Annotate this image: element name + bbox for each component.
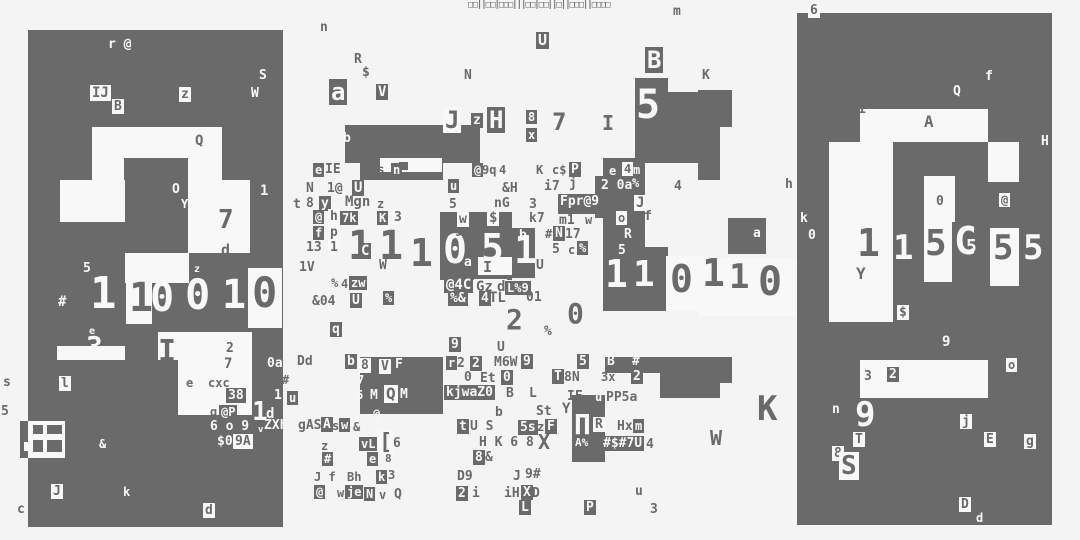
art-glyph: L: [529, 387, 537, 400]
art-glyph: %: [544, 325, 552, 338]
art-glyph: x: [526, 128, 537, 142]
art-block: [698, 90, 732, 127]
art-glyph: 6 o 9: [210, 420, 249, 433]
art-block: [860, 360, 988, 398]
art-glyph: 1@: [327, 182, 343, 195]
art-glyph: c: [17, 503, 25, 516]
art-glyph: nG: [494, 197, 510, 210]
art-glyph: z: [179, 87, 191, 102]
art-glyph: A%: [575, 437, 588, 448]
art-glyph: 38: [226, 388, 246, 403]
art-glyph: &: [353, 421, 360, 433]
art-glyph: vL: [359, 437, 377, 451]
art-glyph: U: [350, 293, 362, 308]
art-glyph: n: [320, 21, 328, 34]
art-glyph: Dd: [297, 355, 313, 368]
art-glyph: d: [221, 243, 230, 258]
art-glyph: 9: [855, 398, 875, 432]
art-glyph: Q: [953, 85, 961, 98]
art-glyph: Y: [181, 198, 188, 210]
art-glyph: w: [339, 418, 350, 432]
art-glyph: T: [853, 432, 865, 447]
art-glyph: 1: [473, 225, 480, 237]
art-glyph: %: [383, 291, 394, 305]
art-glyph: L: [519, 500, 531, 515]
art-glyph: @: [314, 485, 325, 499]
art-glyph: e: [186, 377, 193, 389]
art-glyph: a: [464, 256, 472, 269]
art-glyph: B: [645, 47, 663, 73]
art-glyph: #: [282, 374, 289, 386]
art-block: [660, 372, 720, 398]
art-glyph: kjwaZ0: [444, 385, 495, 400]
art-glyph: j: [569, 177, 577, 190]
ascii-art-canvas: □□||□□|□□□|||□□|□□||□||□□□||□□□□s5cr @SW…: [0, 0, 1080, 540]
art-glyph: 0: [185, 274, 210, 316]
art-glyph: R: [624, 228, 632, 241]
art-glyph: e: [313, 163, 324, 177]
art-glyph: @: [999, 193, 1010, 207]
art-glyph: 0: [808, 229, 816, 242]
art-glyph: u: [635, 485, 643, 498]
window-pane-part: [20, 421, 28, 458]
art-glyph: 13: [306, 241, 322, 254]
art-glyph: 5: [1023, 231, 1043, 265]
art-glyph: 1V: [299, 261, 315, 274]
art-glyph: 5: [449, 198, 457, 211]
art-glyph: Q: [394, 488, 402, 501]
art-glyph: g: [505, 231, 512, 242]
art-glyph: Mgn: [345, 195, 370, 209]
art-glyph: a: [753, 227, 761, 240]
art-glyph: 3: [864, 370, 872, 383]
art-glyph: 6: [808, 3, 820, 18]
art-block: [635, 145, 700, 163]
art-glyph: je: [345, 485, 363, 499]
art-glyph: M: [400, 388, 408, 401]
art-glyph: @: [313, 210, 324, 224]
art-glyph: D9: [457, 470, 473, 483]
art-glyph: h: [785, 178, 793, 191]
art-glyph: 0: [464, 371, 472, 384]
art-glyph: %: [331, 277, 338, 289]
art-glyph: N: [306, 182, 314, 195]
art-glyph: 8: [359, 358, 371, 373]
art-glyph: 4: [646, 438, 654, 451]
art-glyph: A: [924, 114, 934, 130]
art-glyph: D: [532, 487, 540, 500]
art-glyph: W: [251, 87, 259, 100]
art-glyph: N: [464, 69, 472, 82]
art-glyph: J: [513, 470, 521, 483]
art-glyph: 2: [470, 356, 482, 371]
art-glyph: U: [536, 32, 549, 49]
art-glyph: I: [483, 260, 492, 275]
art-glyph: k: [376, 470, 387, 484]
art-glyph: V: [376, 84, 388, 100]
art-glyph: g: [1024, 434, 1036, 449]
art-glyph: b: [495, 406, 503, 419]
art-glyph: 0: [936, 195, 944, 208]
art-glyph: 3: [388, 469, 395, 481]
window-pane-part: [24, 442, 28, 451]
art-glyph: J f: [314, 471, 336, 483]
art-glyph: o: [1006, 358, 1017, 372]
art-glyph: Y: [562, 402, 570, 416]
art-glyph: f: [313, 226, 324, 240]
art-glyph: 1: [729, 260, 749, 294]
art-glyph: 1: [605, 255, 628, 293]
art-glyph: &04: [312, 295, 335, 308]
art-glyph: V: [379, 359, 391, 374]
art-glyph: 8: [526, 110, 537, 124]
art-glyph: l: [59, 376, 71, 391]
art-glyph: #: [632, 355, 640, 368]
art-glyph: B: [607, 355, 615, 368]
art-glyph: S: [259, 69, 267, 82]
art-glyph: c: [568, 244, 575, 256]
art-glyph: 3: [529, 198, 537, 211]
art-glyph: Et: [480, 372, 496, 385]
art-glyph: n: [391, 163, 402, 177]
art-glyph: K: [757, 392, 777, 426]
art-glyph: J: [51, 484, 63, 499]
art-glyph: q: [330, 322, 342, 337]
art-block: [988, 142, 1019, 182]
art-glyph: $0: [217, 435, 233, 448]
art-glyph: H: [487, 107, 505, 133]
art-glyph: c$: [552, 164, 566, 176]
art-glyph: m: [633, 164, 640, 176]
art-glyph: z: [377, 198, 384, 210]
art-glyph: C: [359, 243, 371, 259]
art-glyph: 9: [521, 354, 533, 369]
art-glyph: a: [329, 79, 347, 105]
art-glyph: 9q: [482, 164, 496, 176]
art-glyph: 7: [357, 374, 364, 386]
art-glyph: U S: [470, 420, 493, 433]
art-glyph: Y: [856, 266, 866, 282]
art-glyph: 4: [497, 163, 508, 177]
art-glyph: I: [158, 337, 176, 367]
art-glyph: K: [536, 164, 543, 176]
art-glyph: $: [362, 66, 370, 79]
art-glyph: &: [99, 438, 106, 450]
art-glyph: 17: [565, 228, 581, 241]
art-glyph: R: [354, 53, 362, 66]
art-glyph: d: [203, 503, 215, 518]
art-glyph: gAS: [298, 419, 321, 432]
art-glyph: Hx: [617, 420, 633, 433]
art-glyph: X: [538, 432, 550, 452]
art-glyph: 7: [224, 357, 232, 371]
art-glyph: k7: [529, 212, 545, 225]
window-pane-cell: [33, 440, 43, 452]
art-glyph: n: [832, 403, 840, 416]
art-block: [188, 158, 222, 181]
art-glyph: 5: [577, 354, 589, 369]
art-glyph: 6: [356, 389, 363, 401]
art-glyph: PP5a: [606, 391, 637, 404]
art-glyph: M6W: [494, 356, 517, 369]
art-glyph: d: [976, 512, 983, 524]
art-glyph: m: [633, 419, 644, 433]
art-glyph: o: [616, 211, 627, 225]
art-glyph: 1: [260, 184, 268, 198]
art-glyph: 8: [306, 197, 314, 210]
binary-header-text: □□||□□|□□□|||□□|□□||□||□□□||□□□□: [468, 1, 609, 10]
art-glyph: B: [506, 387, 514, 400]
art-glyph: 1: [90, 272, 117, 316]
art-glyph: J: [443, 107, 461, 133]
art-glyph: Fpr@9: [560, 195, 599, 208]
art-glyph: 1: [328, 240, 340, 255]
art-glyph: &: [485, 451, 493, 464]
art-glyph: 7: [552, 110, 566, 134]
art-glyph: #: [58, 295, 66, 309]
art-glyph: R: [593, 417, 605, 432]
art-glyph: 5s: [518, 420, 538, 435]
art-glyph: @P: [219, 405, 237, 419]
art-glyph: r: [446, 356, 457, 370]
art-glyph: 5: [925, 226, 947, 262]
art-glyph: %: [577, 241, 588, 255]
art-glyph: ZXh: [264, 419, 287, 432]
art-glyph: u: [448, 179, 459, 193]
art-glyph: %&: [448, 291, 468, 306]
art-glyph: 2: [456, 486, 468, 501]
art-glyph: M: [370, 389, 378, 402]
art-glyph: 0: [150, 278, 174, 318]
art-glyph: 9: [455, 226, 462, 238]
art-glyph: z: [321, 440, 328, 452]
art-glyph: IE: [325, 163, 341, 176]
art-glyph: 4: [674, 180, 682, 193]
art-glyph: T: [552, 369, 564, 384]
art-glyph: t: [293, 198, 301, 211]
art-glyph: St: [536, 405, 552, 418]
art-glyph: i7: [544, 180, 560, 193]
art-glyph: 5: [993, 231, 1013, 265]
art-glyph: 0a: [267, 357, 283, 370]
art-glyph: Q: [384, 385, 398, 403]
art-glyph: #: [322, 452, 333, 466]
art-glyph: 8: [473, 450, 485, 465]
art-glyph: 3: [86, 333, 103, 361]
art-glyph: b: [345, 354, 357, 369]
art-glyph: 2: [887, 367, 899, 382]
art-glyph: e: [367, 452, 378, 466]
art-glyph: Bh: [347, 471, 361, 483]
art-glyph: e: [609, 165, 616, 177]
window-pane-cell: [47, 440, 62, 452]
art-glyph: f: [644, 210, 652, 223]
art-glyph: h: [328, 209, 340, 224]
art-glyph: u: [287, 391, 298, 405]
art-glyph: TL: [489, 291, 506, 305]
art-block: [380, 158, 442, 172]
art-glyph: %: [632, 177, 639, 189]
art-glyph: 6: [393, 437, 401, 450]
art-glyph: D: [959, 497, 971, 512]
art-glyph: 1: [274, 389, 282, 402]
art-glyph: W: [710, 428, 722, 448]
art-glyph: F: [395, 358, 403, 371]
art-glyph: i: [472, 487, 480, 500]
art-glyph: U: [536, 259, 544, 272]
art-glyph: 2 0a: [601, 179, 632, 192]
art-glyph: iH: [504, 487, 520, 500]
art-glyph: p: [328, 225, 340, 240]
art-glyph: u: [595, 391, 602, 403]
art-glyph: m: [673, 5, 681, 18]
art-glyph: 01: [526, 291, 542, 304]
art-glyph: z: [471, 113, 483, 128]
art-glyph: #$#7U: [601, 436, 644, 451]
art-glyph: K: [702, 69, 710, 82]
art-glyph: 1: [514, 231, 537, 269]
art-glyph: 0: [567, 300, 584, 328]
window-pane-cell: [33, 425, 43, 434]
art-glyph: k: [800, 212, 808, 225]
art-glyph: B: [112, 99, 124, 114]
art-glyph: Xs: [369, 164, 385, 177]
art-glyph: 2: [226, 342, 234, 355]
art-glyph: 4: [622, 162, 633, 176]
art-glyph: 9#: [525, 468, 541, 481]
art-glyph: 1: [222, 275, 246, 315]
art-block: [720, 357, 732, 383]
art-block: [92, 158, 124, 181]
art-glyph: r @: [108, 38, 131, 51]
art-glyph: H: [1041, 135, 1049, 148]
art-glyph: 0: [501, 370, 513, 385]
art-glyph: 9: [449, 337, 461, 352]
art-glyph: 0: [758, 262, 782, 302]
art-glyph: U: [497, 341, 505, 354]
art-glyph: &H: [502, 182, 518, 195]
art-glyph: 2: [631, 369, 643, 384]
art-glyph: zw: [349, 276, 367, 290]
art-glyph: $: [897, 305, 909, 320]
art-glyph: q: [210, 406, 217, 418]
art-glyph: 0: [252, 272, 277, 314]
art-glyph: t: [457, 419, 469, 434]
art-glyph: 5: [966, 238, 977, 256]
art-glyph: 7: [218, 207, 234, 233]
art-glyph: w: [337, 487, 344, 499]
art-glyph: 1: [893, 231, 913, 265]
art-block: [698, 127, 720, 180]
art-glyph: P: [569, 162, 581, 177]
art-glyph: 8: [385, 453, 392, 464]
art-glyph: P: [584, 500, 596, 515]
art-glyph: $: [487, 210, 499, 226]
art-glyph: v: [258, 426, 263, 435]
art-glyph: 1: [702, 254, 725, 292]
art-glyph: I: [602, 113, 614, 133]
art-glyph: 0: [670, 260, 693, 298]
art-glyph: 3: [650, 503, 658, 516]
art-glyph: Q: [195, 134, 203, 148]
art-glyph: 5: [552, 243, 560, 256]
art-glyph: b: [343, 132, 351, 145]
art-block: [60, 180, 125, 222]
art-glyph: v: [379, 489, 386, 501]
art-glyph: 9: [942, 335, 950, 349]
art-glyph: 5: [636, 85, 660, 125]
art-glyph: N: [553, 226, 565, 241]
art-glyph: k: [123, 486, 130, 498]
art-block: [605, 357, 720, 373]
art-glyph: 9A: [233, 434, 253, 449]
art-glyph: #: [545, 228, 552, 240]
art-glyph: j: [960, 414, 972, 429]
art-glyph: @: [373, 408, 380, 420]
art-glyph: 2: [457, 357, 465, 370]
art-glyph: S: [839, 452, 859, 480]
art-glyph: IJ: [90, 85, 111, 101]
art-glyph: W: [379, 259, 387, 272]
window-pane-cell: [47, 425, 62, 434]
art-glyph: s: [3, 376, 11, 389]
art-glyph: i: [858, 103, 866, 116]
art-glyph: H K 6 8: [479, 436, 534, 449]
art-glyph: N: [364, 487, 375, 501]
art-glyph: Π: [574, 411, 591, 439]
art-glyph: 1: [410, 234, 433, 272]
art-glyph: E: [984, 432, 996, 447]
art-glyph: 2: [506, 306, 523, 334]
art-glyph: w: [585, 214, 592, 226]
art-glyph: O: [172, 183, 180, 196]
art-glyph: f: [985, 70, 993, 83]
art-glyph: 8N: [564, 371, 580, 384]
art-glyph: 3x: [601, 371, 615, 383]
art-glyph: 4: [341, 278, 348, 290]
art-glyph: 5: [1, 405, 9, 418]
art-glyph: 1: [857, 224, 880, 262]
art-glyph: 1: [633, 257, 655, 293]
